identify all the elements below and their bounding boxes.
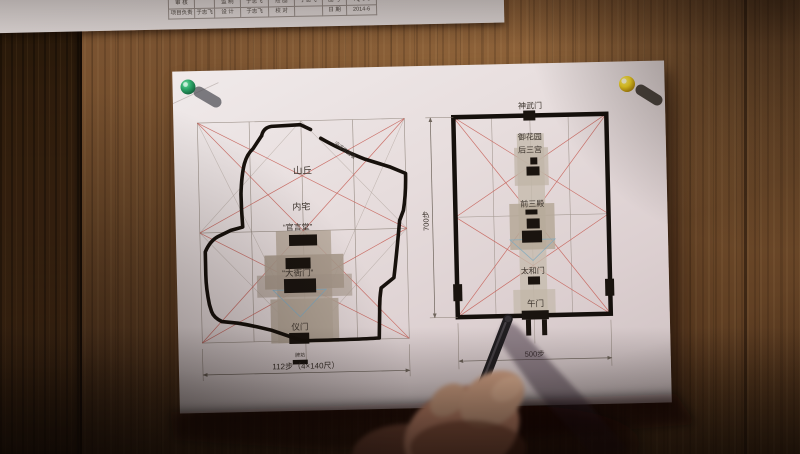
wood-plank-left [0,0,82,454]
tb-cell: 于志飞 [195,8,215,18]
drawing-sheet: 沿溪筑围墙 山丘 内宅 “官言堂” “大衙门” 仪门 牌坊 112步（4×140… [172,60,672,413]
title-block-table: 审 核 监 制 于志飞 绘 图 于志飞 图 号 YQ-9-3 项目负责 于志飞 … [168,0,377,20]
east-side-gate-block [605,279,614,296]
main-gate-label: “大衙门” [282,267,314,278]
ceremonial-gate-label: 仪门 [291,322,308,332]
plans-svg: 沿溪筑围墙 山丘 内宅 “官言堂” “大衙门” 仪门 牌坊 112步（4×140… [172,60,672,413]
tb-cell [294,6,322,17]
hall-label: “官言堂” [283,221,313,232]
tb-cell: 2014-6 [346,5,376,16]
north-gate-block [523,110,535,120]
archway-label: 牌坊 [295,352,305,359]
north-gate-label: 神武门 [518,100,542,111]
tb-cell: 日 期 [322,5,346,16]
front-three-halls-label: 前三殿 [520,198,544,209]
meridian-gate-block [522,310,549,320]
meridian-gate-label: 午门 [527,298,544,308]
hill-label: 山丘 [293,165,313,176]
imperial-garden-label: 御花园 [518,131,542,142]
right-height-dim-label: 700步 [421,210,430,231]
wood-seam [744,0,747,454]
left-diagram-residence-plan: 沿溪筑围墙 山丘 内宅 “官言堂” “大衙门” 仪门 牌坊 112步（4×140… [197,118,410,381]
photo-of-pinned-plans: 审 核 监 制 于志飞 绘 图 于志飞 图 号 YQ-9-3 项目负责 于志飞 … [0,0,800,454]
tb-cell: 于志飞 [241,7,269,18]
west-side-gate-block [453,284,462,301]
tb-cell: 设 计 [215,8,241,19]
tb-cell: 项目负责 [169,9,195,20]
rear-three-palaces-label: 后三宫 [518,144,542,155]
right-width-dim-label: 500步 [525,349,546,358]
taihe-gate-label: 太和门 [521,265,545,276]
right-diagram-forbidden-city-plan: 神武门 御花园 后三宫 前三殿 太和门 午门 500步 [419,99,616,370]
right-width-dimension: 500步 [458,320,612,369]
left-width-dim-label: 112步（4×140尺） [272,361,339,372]
taihe-gate-block [528,276,540,284]
paper-crease [172,83,218,104]
tb-cell: 校 对 [269,6,295,17]
inner-residence-label: 内宅 [292,201,310,212]
